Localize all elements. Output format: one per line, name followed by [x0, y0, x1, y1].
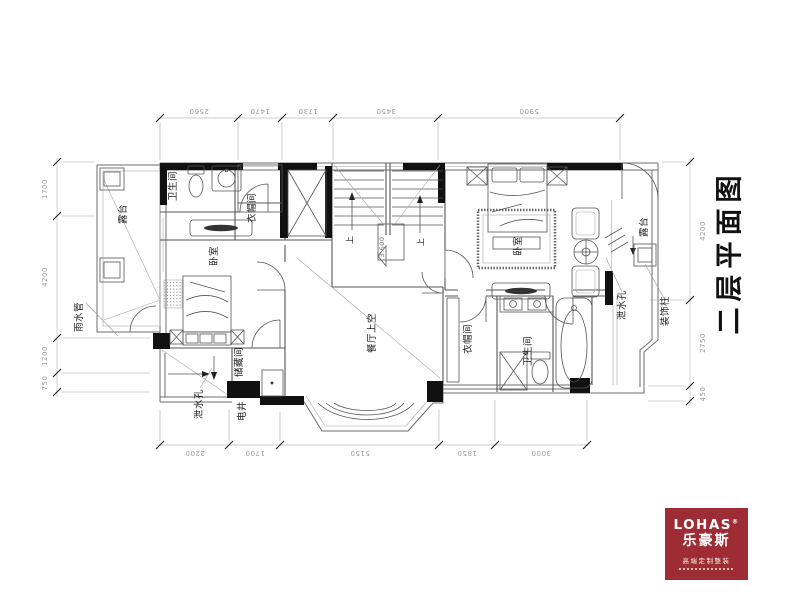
- dim-left-2: 4200: [41, 267, 49, 287]
- elevator: [288, 170, 326, 236]
- room-label-bathroom-right: 卫生间: [520, 336, 534, 366]
- dim-top-3: 1730: [298, 107, 318, 115]
- logo-subtext-line: [679, 568, 735, 570]
- round-table-icon: [574, 240, 598, 264]
- annotation-drain-right: 泄水孔: [614, 290, 628, 320]
- dim-left-4: 750: [41, 376, 49, 391]
- bedroom-left-furniture: [164, 220, 285, 345]
- door-arc: [460, 296, 486, 322]
- logo-brand-chinese: 乐豪斯: [683, 533, 731, 551]
- room-label-bathroom-left: 卫生间: [165, 171, 179, 201]
- dimension-line-bottom: [156, 400, 591, 449]
- logo-brand-text: LOHAS®: [673, 518, 739, 533]
- room-label-closet-left: 衣帽间: [244, 193, 258, 223]
- annotation-deco-column: 装饰柱: [657, 296, 671, 326]
- annotation-electric-shaft: 电井: [234, 401, 248, 421]
- bathtub-icon: [556, 298, 592, 388]
- annotation-drain-left: 泄水孔: [191, 389, 205, 419]
- terrace-left: [97, 165, 160, 332]
- lohas-logo: LOHAS® 乐豪斯 高端定制整装: [665, 508, 748, 580]
- dim-top-2: 1470: [250, 107, 270, 115]
- logo-tagline: 高端定制整装: [683, 555, 731, 565]
- bed-icon: [488, 164, 547, 232]
- floor-plan-page: 露台 卫生间 衣帽间 卧室 储藏间 餐厅上空 卧室 衣帽间 卫生间 露台 雨水管…: [0, 0, 800, 598]
- dresser-icon: [190, 220, 252, 236]
- drawing-title: 二层平面图: [708, 170, 747, 335]
- terrace-right: [605, 163, 658, 266]
- steps: [605, 228, 628, 252]
- dim-bottom-4: 1850: [457, 449, 477, 457]
- door-arc: [622, 163, 658, 199]
- dim-right-1: 4200: [699, 221, 707, 241]
- room-label-bedroom-right: 卧室: [510, 236, 524, 256]
- dim-top-5: 5900: [519, 107, 539, 115]
- door-arc: [252, 320, 280, 348]
- planter: [634, 244, 656, 266]
- annotation-stair-up-left: 上: [345, 236, 356, 244]
- dim-bottom-3: 5150: [350, 449, 370, 457]
- room-label-dining-void: 餐厅上空: [364, 313, 378, 353]
- toilet-icon: [188, 166, 204, 197]
- annotation-stair-up-right: 上: [416, 238, 427, 246]
- dim-left-3: 1200: [41, 346, 49, 366]
- room-label-terrace-left: 露台: [115, 204, 129, 224]
- room-label-closet-right: 衣帽间: [460, 324, 474, 354]
- dim-bottom-2: 1700: [245, 449, 265, 457]
- annotation-stair-level: 3.600: [378, 236, 386, 257]
- door-arc: [422, 272, 443, 293]
- bed-icon: [183, 276, 231, 345]
- tv-cabinet-icon: [492, 283, 550, 299]
- bedroom-right-furniture: [445, 164, 599, 299]
- hatched-niche: [164, 280, 182, 308]
- room-label-bedroom-left: 卧室: [206, 246, 220, 266]
- door-arc: [257, 262, 285, 290]
- door-arc: [445, 250, 473, 278]
- armchair-icon: [572, 208, 599, 297]
- dimension-line-top: [156, 114, 624, 160]
- dim-right-3: 450: [699, 387, 707, 402]
- dim-bottom-1: 2200: [185, 449, 205, 457]
- dim-left-1: 1700: [41, 179, 49, 199]
- dim-bottom-5: 3000: [531, 449, 551, 457]
- dim-top-1: 2560: [189, 107, 209, 115]
- registered-mark: ®: [732, 518, 740, 525]
- room-label-storage: 储藏间: [231, 347, 245, 377]
- dimension-line-left: [53, 158, 150, 397]
- annotation-rain-pipe: 雨水管: [71, 302, 85, 332]
- dim-top-4: 3450: [376, 107, 396, 115]
- bathroom-right-fixtures: [500, 296, 592, 390]
- room-label-terrace-right: 露台: [636, 217, 650, 237]
- staircase: [334, 163, 443, 293]
- dim-right-2: 2750: [699, 333, 707, 353]
